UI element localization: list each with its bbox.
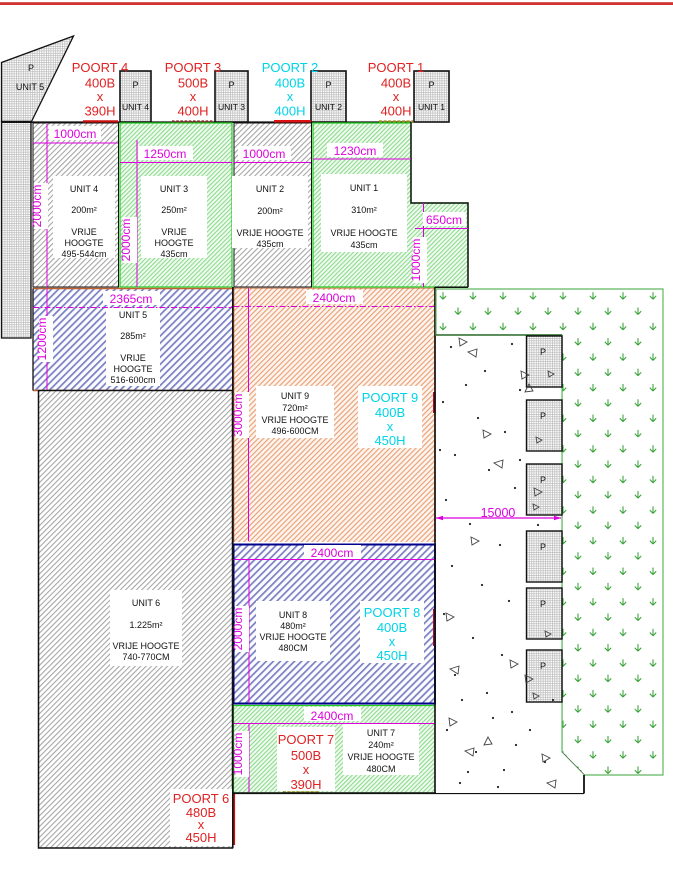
svg-text:1000cm: 1000cm (54, 127, 97, 141)
svg-text:2000cm: 2000cm (30, 185, 44, 228)
svg-text:435cm: 435cm (160, 249, 187, 259)
svg-text:HOOGTE: HOOGTE (113, 364, 152, 374)
svg-text:495-544cm: 495-544cm (61, 249, 106, 259)
svg-text:VRIJE HOOGTE: VRIJE HOOGTE (112, 641, 179, 651)
svg-text:390H: 390H (290, 777, 321, 792)
svg-text:450H: 450H (376, 648, 407, 663)
svg-text:435cm: 435cm (256, 239, 283, 249)
svg-text:720m²: 720m² (282, 403, 308, 413)
svg-text:UNIT 5: UNIT 5 (119, 310, 147, 320)
svg-text:2400cm: 2400cm (311, 546, 354, 560)
svg-text:200m²: 200m² (71, 205, 97, 215)
svg-text:P: P (540, 347, 546, 357)
svg-text:250m²: 250m² (161, 205, 187, 215)
svg-text:VRIJE: VRIJE (71, 227, 97, 237)
svg-text:P: P (540, 475, 546, 485)
svg-text:2400cm: 2400cm (313, 291, 356, 305)
svg-text:HOOGTE: HOOGTE (154, 238, 193, 248)
svg-text:UNIT 1: UNIT 1 (418, 102, 445, 112)
svg-text:HOOGTE: HOOGTE (64, 238, 103, 248)
svg-text:P: P (540, 542, 546, 552)
svg-text:480CM: 480CM (278, 643, 307, 653)
svg-text:390H: 390H (84, 104, 115, 119)
svg-text:UNIT 4: UNIT 4 (122, 102, 149, 112)
svg-text:1230cm: 1230cm (334, 144, 377, 158)
svg-text:496-600CM: 496-600CM (271, 426, 318, 436)
svg-text:UNIT 1: UNIT 1 (350, 183, 378, 193)
svg-text:UNIT 4: UNIT 4 (70, 184, 98, 194)
svg-text:POORT 3: POORT 3 (165, 60, 222, 75)
svg-text:516-600cm: 516-600cm (110, 375, 155, 385)
svg-text:POORT 1: POORT 1 (368, 60, 425, 75)
svg-text:200m²: 200m² (257, 206, 283, 216)
svg-text:2400cm: 2400cm (311, 709, 354, 723)
svg-text:VRIJE HOOGTE: VRIJE HOOGTE (259, 632, 326, 642)
svg-text:x: x (190, 89, 197, 104)
svg-text:x: x (393, 89, 400, 104)
svg-text:400B: 400B (375, 405, 405, 420)
svg-text:POORT 6: POORT 6 (173, 791, 230, 806)
svg-text:435cm: 435cm (350, 240, 377, 250)
svg-text:POORT 8: POORT 8 (364, 605, 421, 620)
svg-text:UNIT 7: UNIT 7 (367, 728, 395, 738)
svg-text:UNIT 2: UNIT 2 (315, 102, 342, 112)
svg-text:VRIJE HOOGTE: VRIJE HOOGTE (261, 415, 328, 425)
svg-text:UNIT 9: UNIT 9 (281, 391, 309, 401)
svg-text:POORT 9: POORT 9 (362, 390, 419, 405)
svg-text:x: x (287, 89, 294, 104)
svg-text:POORT 4: POORT 4 (72, 60, 129, 75)
svg-text:1200cm: 1200cm (35, 318, 49, 361)
svg-text:400H: 400H (380, 104, 411, 119)
svg-text:x: x (303, 762, 310, 777)
svg-text:P: P (228, 80, 234, 90)
svg-text:POORT 2: POORT 2 (262, 60, 319, 75)
svg-text:VRIJE HOOGTE: VRIJE HOOGTE (330, 228, 397, 238)
svg-text:P: P (428, 80, 434, 90)
svg-text:UNIT 2: UNIT 2 (256, 184, 284, 194)
svg-text:1250cm: 1250cm (144, 147, 187, 161)
svg-text:400B: 400B (377, 620, 407, 635)
svg-text:x: x (389, 634, 396, 649)
svg-text:310m²: 310m² (351, 205, 377, 215)
svg-text:450H: 450H (185, 830, 216, 845)
svg-text:P: P (325, 80, 331, 90)
svg-text:UNIT 8: UNIT 8 (279, 610, 307, 620)
svg-text:400H: 400H (274, 104, 305, 119)
svg-text:UNIT 5: UNIT 5 (16, 82, 44, 92)
svg-text:285m²: 285m² (120, 331, 146, 341)
svg-text:x: x (387, 419, 394, 434)
svg-text:UNIT 3: UNIT 3 (218, 102, 245, 112)
svg-text:1000cm: 1000cm (409, 239, 423, 282)
svg-text:UNIT 6: UNIT 6 (132, 598, 160, 608)
svg-text:P: P (540, 411, 546, 421)
svg-text:1000cm: 1000cm (243, 147, 286, 161)
svg-text:P: P (540, 599, 546, 609)
svg-text:VRIJE HOOGTE: VRIJE HOOGTE (236, 228, 303, 238)
svg-text:240m²: 240m² (368, 740, 394, 750)
svg-text:650cm: 650cm (426, 213, 462, 227)
svg-text:500B: 500B (291, 748, 321, 763)
svg-text:450H: 450H (374, 433, 405, 448)
svg-text:VRIJE: VRIJE (120, 353, 146, 363)
svg-text:VRIJE: VRIJE (161, 227, 187, 237)
svg-text:P: P (132, 80, 138, 90)
svg-text:15000: 15000 (481, 506, 516, 520)
svg-text:2000cm: 2000cm (119, 219, 133, 262)
svg-text:400H: 400H (177, 104, 208, 119)
svg-text:1.225m²: 1.225m² (129, 620, 162, 630)
svg-text:480m²: 480m² (280, 621, 306, 631)
svg-text:x: x (97, 89, 104, 104)
svg-text:480CM: 480CM (366, 764, 395, 774)
svg-text:P: P (28, 63, 34, 73)
svg-text:740-770CM: 740-770CM (122, 652, 169, 662)
svg-text:VRIJE HOOGTE: VRIJE HOOGTE (347, 752, 414, 762)
svg-text:UNIT 3: UNIT 3 (160, 184, 188, 194)
svg-text:POORT 7: POORT 7 (278, 732, 335, 747)
svg-text:P: P (540, 661, 546, 671)
svg-text:2365cm: 2365cm (110, 292, 153, 306)
